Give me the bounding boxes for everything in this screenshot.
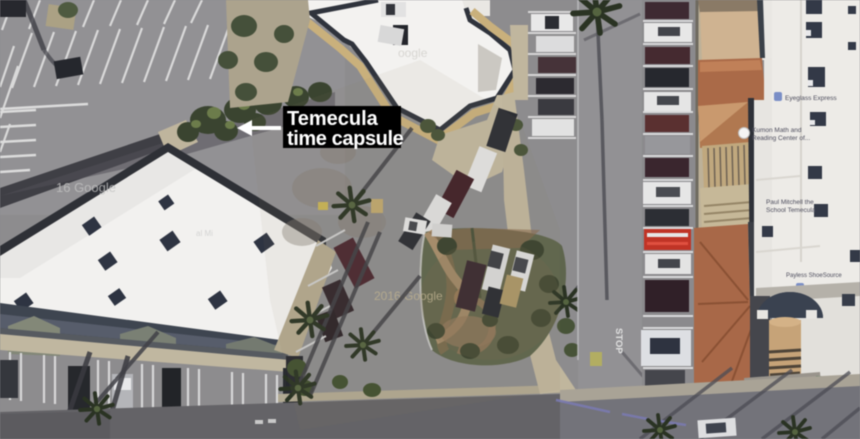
svg-text:Paul Mitchell the: Paul Mitchell the: [766, 199, 814, 206]
svg-text:al Mi: al Mi: [196, 229, 213, 238]
svg-text:STOP: STOP: [613, 328, 624, 354]
svg-text:Payless ShoeSource: Payless ShoeSource: [786, 273, 842, 279]
svg-text:Temecula: Temecula: [287, 108, 379, 130]
svg-text:time capsule: time capsule: [287, 128, 404, 150]
svg-text:oogle: oogle: [398, 46, 428, 60]
svg-text:16 Google: 16 Google: [56, 180, 116, 195]
svg-text:School Temecula: School Temecula: [766, 207, 816, 214]
svg-text:Eyeglass Express: Eyeglass Express: [785, 95, 837, 102]
svg-text:Kumon Math and: Kumon Math and: [752, 127, 802, 134]
svg-text:Reading Center of...: Reading Center of...: [752, 135, 810, 142]
